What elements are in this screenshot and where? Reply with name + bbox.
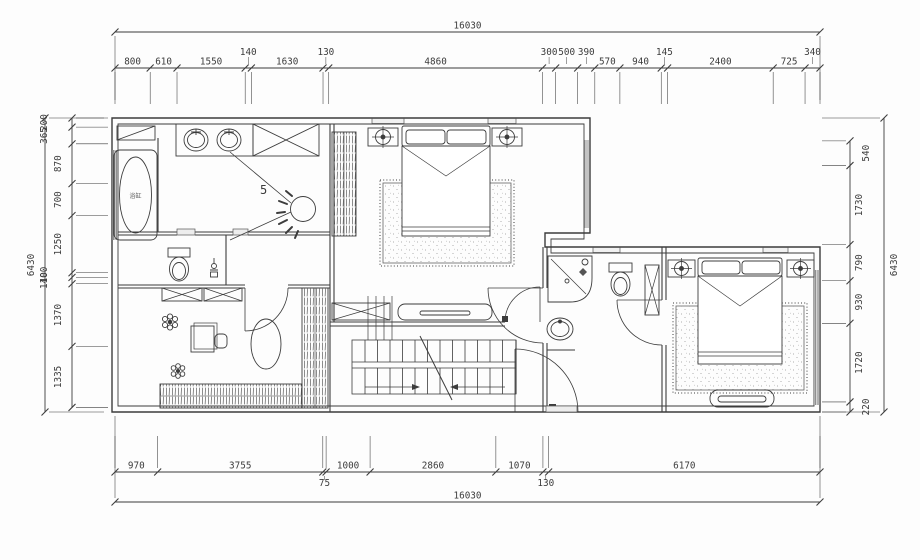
dim-label: 6430 <box>26 254 37 276</box>
toilet <box>609 263 632 296</box>
dim-label: 2400 <box>709 57 731 68</box>
bathtub-label: 浴缸 <box>129 192 141 200</box>
dim-label: 6430 <box>889 254 900 276</box>
low-cabinet <box>332 303 390 320</box>
left-wall-window <box>113 150 118 240</box>
bathroom <box>114 124 253 281</box>
bedroom1-window <box>584 140 589 228</box>
side-table <box>251 319 281 369</box>
dim-label: 130 <box>317 47 334 58</box>
dim-label: 140 <box>240 47 257 58</box>
tall-cabinet <box>645 265 659 315</box>
floor-plan-drawing: 5 浴缸 16030800610155014016301304860300500… <box>0 0 920 560</box>
tv-bench <box>398 304 492 320</box>
washbasin <box>547 318 573 340</box>
dim-label: 570 <box>599 57 616 68</box>
shower <box>548 256 592 302</box>
stair-direction-arrow <box>365 384 505 390</box>
hall-door-arc <box>488 288 543 343</box>
staircase <box>352 296 516 400</box>
bed <box>402 126 490 236</box>
lamp-icon <box>496 126 518 148</box>
nightstand <box>668 258 695 279</box>
dim-label: 16030 <box>454 21 482 32</box>
bedroom-2 <box>668 258 814 407</box>
wall-cabinet <box>162 288 242 301</box>
dim-label: 790 <box>854 254 865 271</box>
plant-icon <box>171 364 185 379</box>
dim-label: 870 <box>53 155 64 172</box>
bedroom1-top-window <box>372 119 516 124</box>
bathroom-2 <box>547 256 659 340</box>
dim-label: 1730 <box>854 194 865 216</box>
bedroom1-door-arc <box>502 287 540 322</box>
floorplan-canvas: 5 浴缸 16030800610155014016301304860300500… <box>0 0 920 560</box>
wardrobe-cabinet <box>253 124 319 156</box>
dim-label: 930 <box>854 294 865 311</box>
lamp-icon <box>790 258 811 279</box>
dim-label: 1370 <box>53 304 64 326</box>
nightstand <box>492 126 522 148</box>
floor-plan: 5 浴缸 <box>112 118 820 412</box>
dim-label: 970 <box>128 461 145 472</box>
dim-label: 700 <box>53 191 64 208</box>
lamp-icon <box>372 126 394 148</box>
closet-hanging-rail <box>332 132 356 236</box>
dim-label: 390 <box>578 47 595 58</box>
lamp-icon <box>671 258 692 279</box>
dim-label: 1335 <box>53 366 64 388</box>
nightstand <box>787 258 814 279</box>
dim-label: 725 <box>781 57 798 68</box>
dim-label: 6170 <box>673 461 695 472</box>
floor-tap <box>210 258 218 277</box>
plant-icon <box>162 314 177 330</box>
study-door-arc <box>245 288 288 331</box>
dim-label: 1250 <box>53 233 64 255</box>
dim-label: 1720 <box>854 351 865 373</box>
dim-label: 540 <box>861 145 872 162</box>
dim-label: 1000 <box>337 461 359 472</box>
desk <box>191 323 217 352</box>
dim-label: 800 <box>124 57 141 68</box>
washing-machine <box>117 126 155 140</box>
vanity-counter <box>176 124 253 156</box>
dim-label: 500 <box>558 47 575 58</box>
dim-label: 4860 <box>424 57 446 68</box>
rightwing-top-window <box>593 248 788 253</box>
study-room <box>160 288 328 408</box>
dim-label: 16030 <box>454 491 482 502</box>
dim-label: 1630 <box>276 57 298 68</box>
dim-label: 220 <box>861 399 872 416</box>
dim-label: 1550 <box>200 57 222 68</box>
dressing-area-label: 5 <box>260 183 267 197</box>
bottom-wardrobe-rail <box>160 384 302 408</box>
side-closet-rail <box>302 288 328 408</box>
bed <box>698 258 782 364</box>
dim-label: 365 <box>39 127 50 144</box>
bedroom-1 <box>332 126 522 320</box>
dim-label: 940 <box>632 57 649 68</box>
nightstand <box>368 126 398 148</box>
dressing-stool <box>277 191 316 238</box>
dim-label: 3755 <box>229 461 251 472</box>
dim-label: 610 <box>155 57 172 68</box>
dim-label: 2860 <box>422 461 444 472</box>
dressing-area <box>230 124 356 240</box>
bedroom2-window <box>814 270 819 405</box>
dim-label: 145 <box>656 47 673 58</box>
toilet <box>168 248 190 281</box>
dim-label: 1070 <box>508 461 530 472</box>
dim-label: 300 <box>541 47 558 58</box>
dim-label: 140 <box>39 272 50 289</box>
bath2-door-arc <box>617 300 662 345</box>
dim-label: 340 <box>804 47 821 58</box>
floor-drain-icon <box>579 268 587 276</box>
